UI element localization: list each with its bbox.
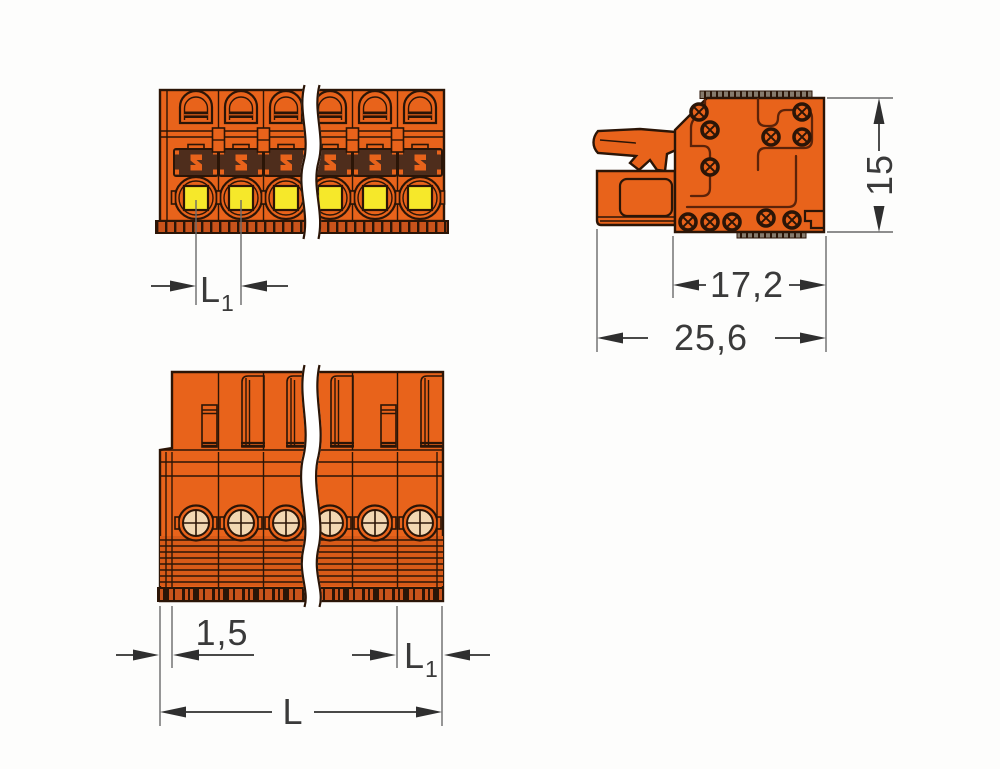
- front-post: [392, 128, 404, 152]
- dim-label-l: L: [282, 691, 303, 732]
- arrowhead-right-icon: [170, 281, 196, 292]
- dim-label-15: 15: [859, 154, 900, 196]
- dim-label-1-5: 1,5: [195, 612, 248, 653]
- arrowhead-left-icon: [444, 650, 470, 661]
- arrowhead-left-icon: [241, 281, 267, 292]
- arrowhead-right-icon: [133, 650, 159, 661]
- dim-label-17-2: 17,2: [710, 264, 784, 305]
- arrowhead-right-icon: [800, 280, 826, 291]
- technical-drawing-page: L1 15 17,2 25,6 1,5: [0, 0, 1000, 769]
- dim-label-25-6: 25,6: [674, 317, 748, 358]
- arrowhead-left-icon: [673, 280, 699, 291]
- front-post: [258, 128, 270, 152]
- arrowhead-left-icon: [160, 707, 186, 718]
- front-post: [213, 128, 225, 152]
- bottom-view: [158, 365, 444, 607]
- dim-15: 15: [827, 98, 900, 232]
- front-view: [156, 85, 448, 239]
- front-post: [347, 128, 359, 152]
- arrowhead-left-icon: [597, 333, 623, 344]
- arrowhead-right-icon: [370, 650, 396, 661]
- connector-dimensional-drawing: L1 15 17,2 25,6 1,5: [0, 0, 1000, 769]
- arrowhead-right-icon: [800, 333, 826, 344]
- side-view: [594, 91, 825, 238]
- front-break-lines: [301, 85, 320, 239]
- arrowhead-down-icon: [874, 206, 885, 232]
- arrowhead-up-icon: [874, 98, 885, 124]
- front-serrated-strip: [156, 221, 448, 233]
- dim-label-l1-top: L1: [200, 269, 235, 316]
- side-plug-block: [597, 171, 675, 225]
- arrowhead-right-icon: [416, 707, 442, 718]
- side-latch-lever: [594, 129, 677, 171]
- dim-l: L: [160, 691, 442, 732]
- bottom-toothed-strip: [158, 588, 443, 601]
- dim-label-l1-bottom: L1: [404, 635, 439, 682]
